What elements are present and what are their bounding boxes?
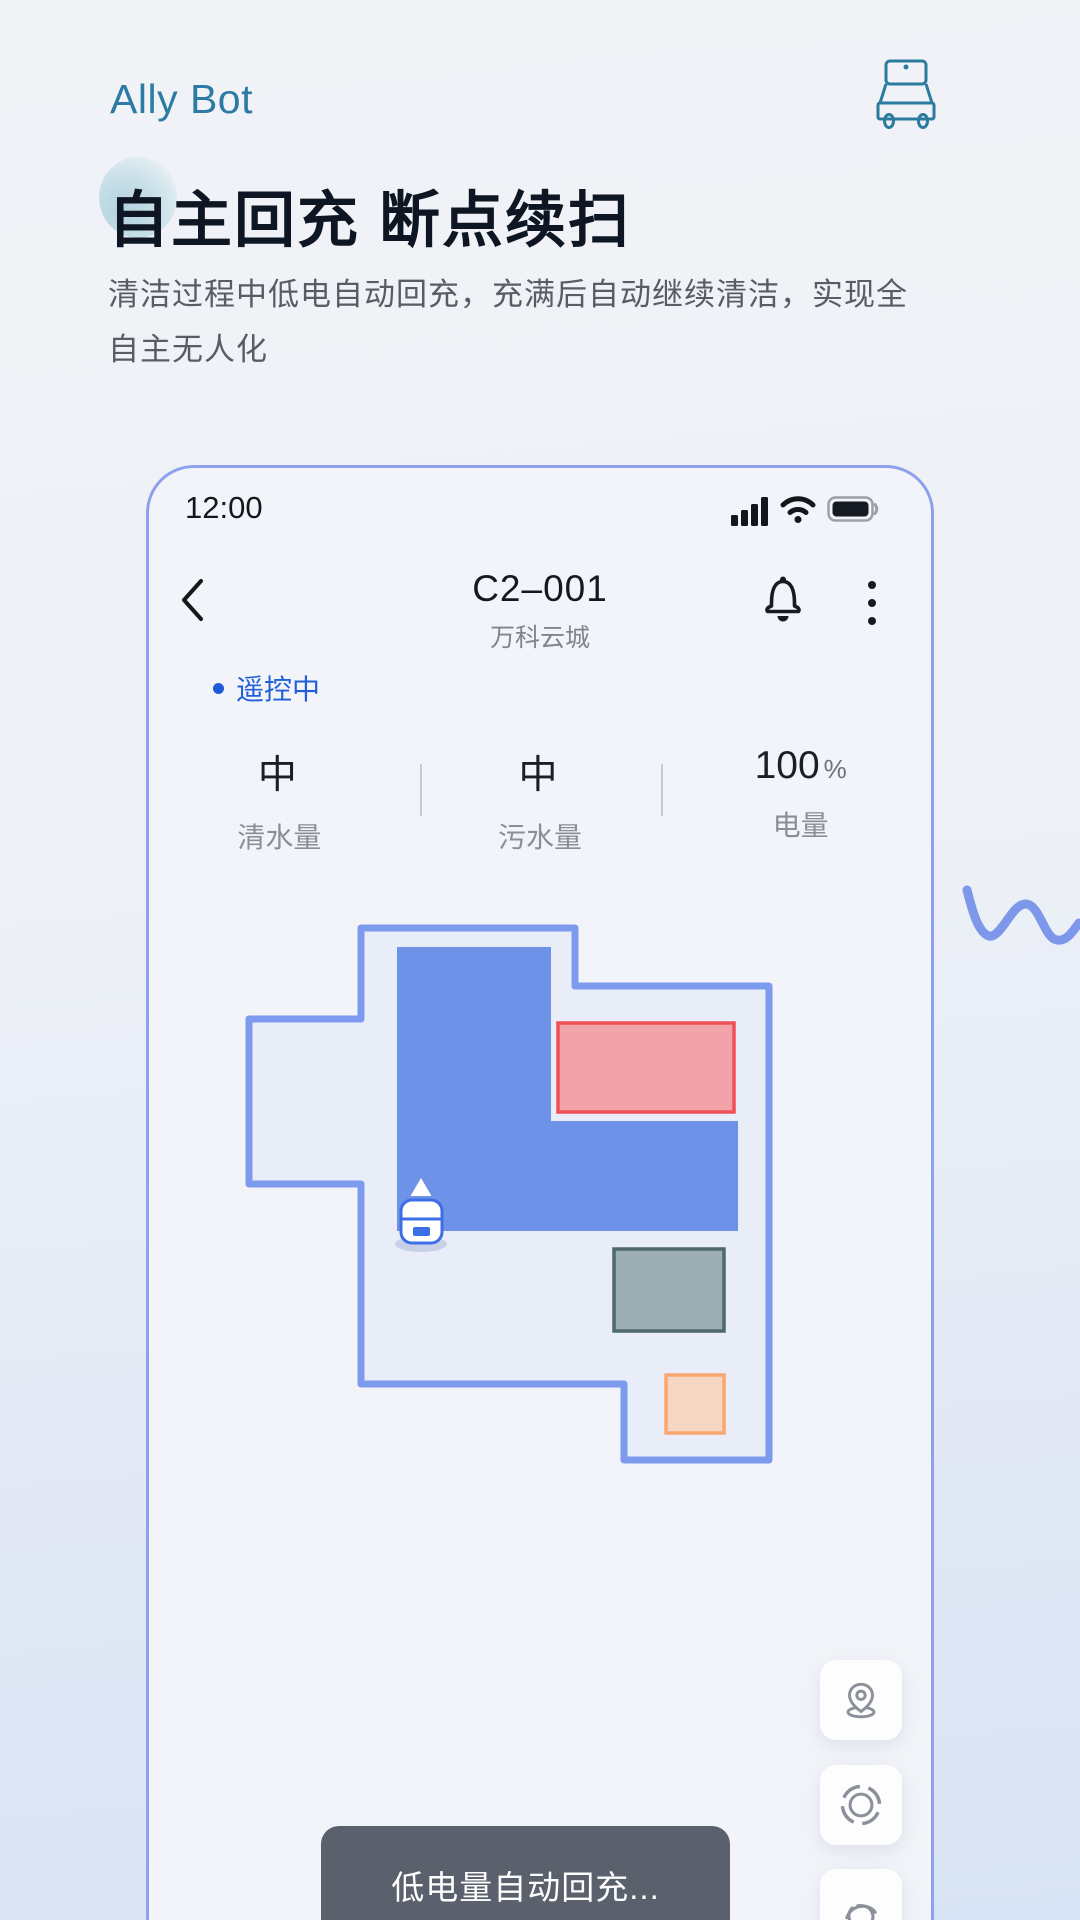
cleaning-map[interactable] [229, 896, 789, 1480]
robot-status-badge: 遥控中 [213, 668, 320, 708]
wifi-icon [780, 492, 816, 526]
notification-bell-icon[interactable] [762, 575, 804, 625]
promo-page: Ally Bot 自主回充 断点续扫 清洁过程中低电自动回充，充满后自动继续清洁… [0, 0, 1080, 1920]
cellular-signal-icon [731, 492, 769, 526]
remote-assist-button[interactable] [820, 1765, 902, 1845]
status-label: 遥控中 [236, 668, 320, 708]
relocate-swirl-icon [837, 1885, 885, 1920]
battery-icon [827, 492, 879, 526]
stat-clean-water: 中 清水量 [149, 744, 410, 856]
relocate-button[interactable] [820, 1869, 902, 1920]
locate-robot-button[interactable] [820, 1660, 902, 1740]
more-menu-button[interactable] [867, 580, 877, 626]
squiggle-decoration [948, 878, 1080, 962]
page-title: 自主回充 断点续扫 [108, 170, 631, 259]
status-dot-icon [213, 683, 224, 694]
map-obstacle-zone [614, 1249, 724, 1331]
stat-battery: 100% 电量 [670, 744, 931, 856]
statusbar-icons [731, 492, 879, 526]
map-no-go-zone [558, 1023, 734, 1112]
robot-name-title: C2–001 [149, 568, 931, 610]
phone-mockup: 12:00 [146, 465, 934, 1920]
map-pin-icon [838, 1677, 884, 1723]
stats-divider [420, 764, 422, 816]
toast-message: 低电量自动回充... [321, 1826, 730, 1920]
robot-scrubber-icon [872, 56, 940, 130]
stat-waste-water: 中 污水量 [410, 744, 671, 856]
page-description: 清洁过程中低电自动回充，充满后自动继续清洁，实现全自主无人化 [108, 268, 913, 377]
toast-text: 低电量自动回充... [391, 1861, 660, 1909]
stats-divider [661, 764, 663, 816]
life-ring-icon [837, 1781, 885, 1829]
map-caution-zone [666, 1375, 724, 1433]
stats-row: 中 清水量 中 污水量 100% 电量 [149, 744, 931, 856]
statusbar-time: 12:00 [185, 490, 263, 526]
site-name-subtitle: 万科云城 [149, 618, 931, 654]
brand-logo: Ally Bot [110, 76, 253, 123]
